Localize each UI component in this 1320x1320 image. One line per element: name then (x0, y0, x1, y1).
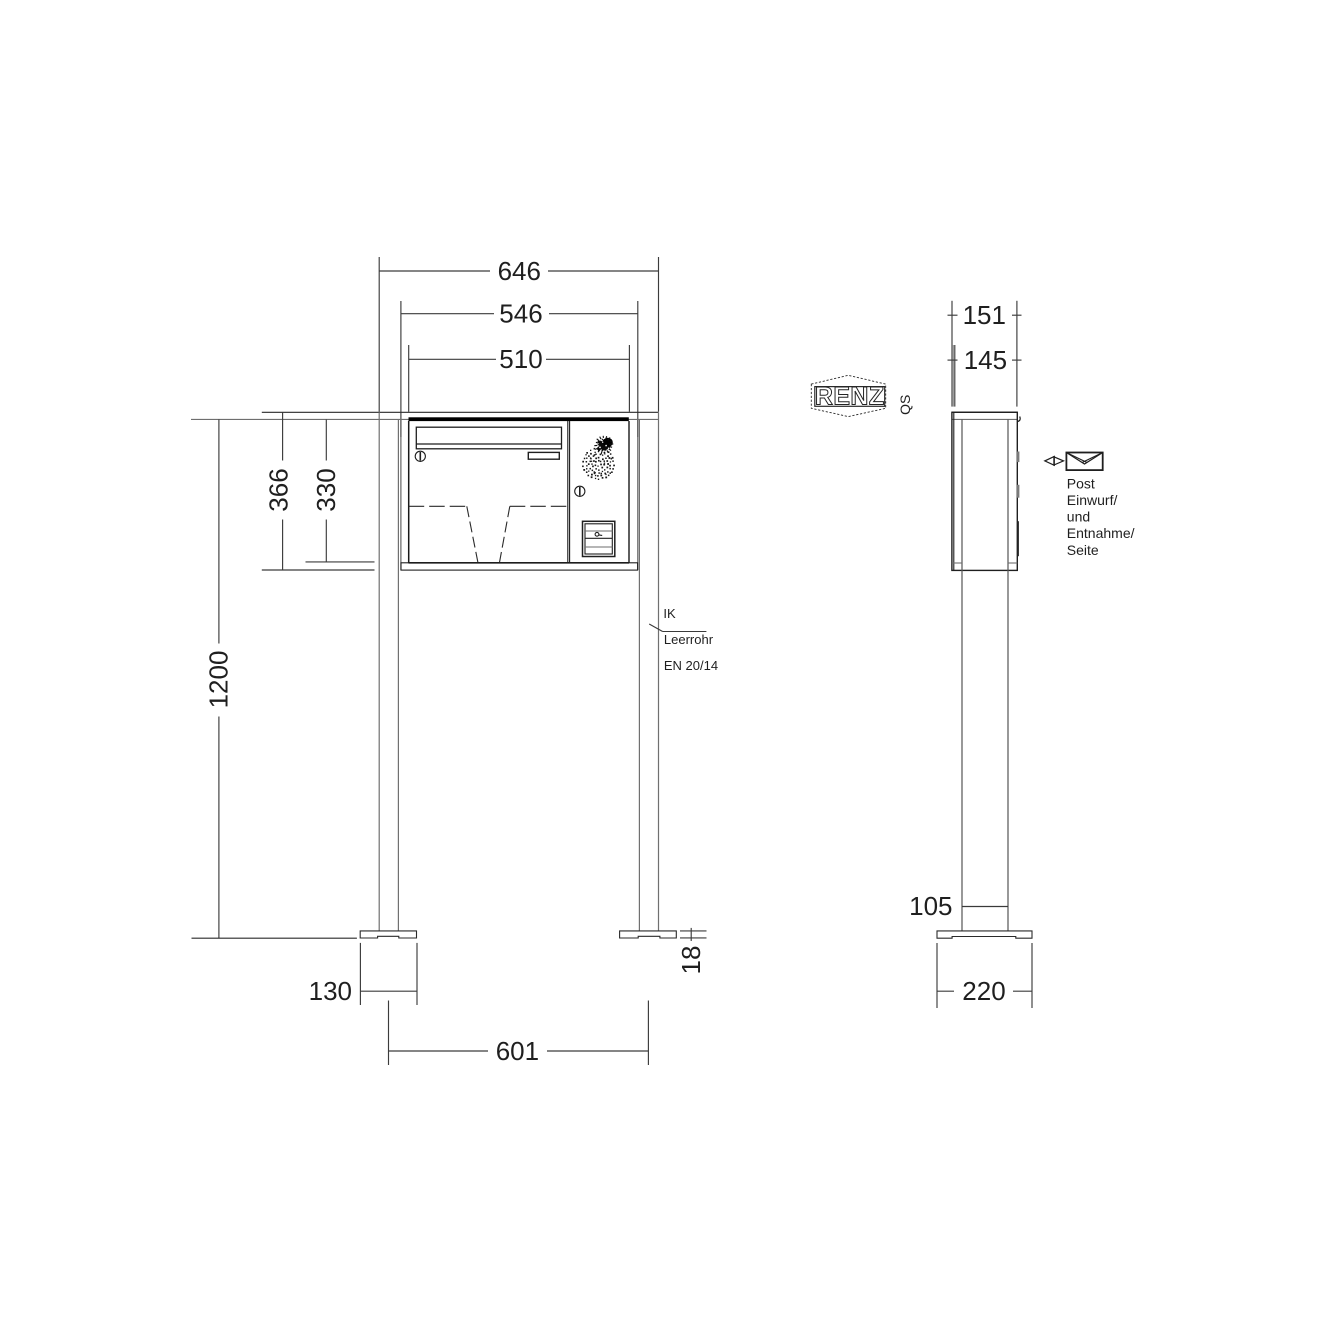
svg-text:Leerrohr: Leerrohr (664, 632, 714, 647)
svg-text:und: und (1067, 509, 1090, 525)
svg-text:18: 18 (676, 946, 706, 975)
svg-text:1200: 1200 (203, 651, 233, 709)
svg-text:601: 601 (496, 1036, 539, 1066)
svg-text:646: 646 (498, 256, 541, 286)
svg-text:330: 330 (311, 468, 341, 511)
svg-text:EN 20/14: EN 20/14 (664, 658, 718, 673)
svg-text:Seite: Seite (1067, 542, 1099, 558)
svg-text:366: 366 (263, 468, 293, 511)
svg-text:546: 546 (499, 298, 542, 328)
svg-text:Entnahme/: Entnahme/ (1067, 525, 1135, 541)
svg-text:RENZ: RENZ (815, 383, 885, 411)
svg-text:220: 220 (962, 976, 1005, 1006)
svg-text:Einwurf/: Einwurf/ (1067, 492, 1118, 508)
svg-text:QS: QS (897, 395, 913, 415)
svg-text:IK: IK (663, 606, 676, 621)
svg-text:145: 145 (964, 345, 1007, 375)
svg-text:105: 105 (909, 891, 952, 921)
svg-text:151: 151 (963, 300, 1006, 330)
svg-text:130: 130 (309, 976, 352, 1006)
svg-text:510: 510 (499, 344, 542, 374)
svg-text:Post: Post (1067, 475, 1095, 491)
